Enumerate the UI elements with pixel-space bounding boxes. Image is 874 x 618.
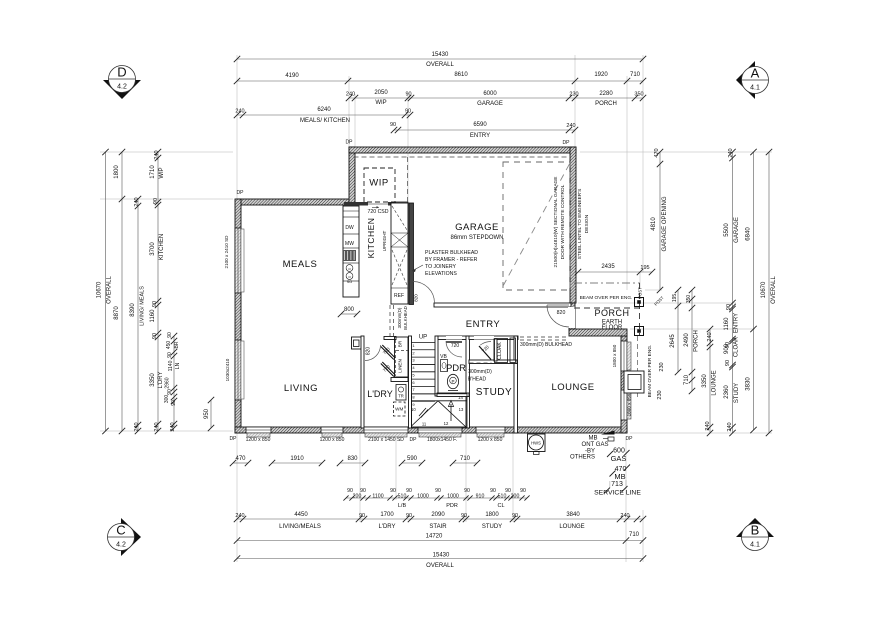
svg-text:10670: 10670 — [761, 281, 767, 298]
svg-text:1160: 1160 — [724, 317, 730, 331]
svg-text:350: 350 — [686, 295, 692, 304]
svg-text:90: 90 — [512, 513, 518, 519]
svg-text:BR: BR — [174, 341, 180, 348]
svg-text:MB: MB — [614, 472, 625, 481]
svg-text:90: 90 — [520, 488, 526, 494]
svg-text:4190: 4190 — [285, 73, 299, 79]
svg-text:6240: 6240 — [317, 107, 331, 113]
svg-text:3830: 3830 — [746, 377, 752, 391]
svg-text:90: 90 — [405, 92, 411, 98]
svg-text:L'DRY: L'DRY — [367, 389, 393, 399]
svg-text:DP: DP — [230, 436, 238, 442]
svg-text:12: 12 — [444, 421, 449, 426]
svg-text:90: 90 — [390, 488, 396, 494]
svg-text:240: 240 — [154, 422, 160, 431]
svg-text:240: 240 — [727, 422, 733, 431]
svg-text:LOUNGE: LOUNGE — [559, 524, 584, 530]
svg-text:240: 240 — [154, 150, 160, 159]
svg-text:21500(H)x4810(W) SECTIONAL GAR: 21500(H)x4810(W) SECTIONAL GARAGE — [553, 177, 559, 268]
svg-text:4.1: 4.1 — [750, 542, 760, 549]
svg-text:2360: 2360 — [724, 385, 730, 399]
svg-text:WIP: WIP — [369, 178, 388, 189]
svg-text:240: 240 — [134, 197, 140, 206]
svg-text:240: 240 — [346, 92, 355, 98]
svg-text:KITCHEN: KITCHEN — [366, 218, 376, 259]
svg-text:STUDY: STUDY — [476, 387, 512, 398]
svg-text:PORCH: PORCH — [694, 330, 700, 352]
svg-text:240: 240 — [134, 422, 140, 431]
svg-text:300mm(D): 300mm(D) — [468, 369, 492, 375]
svg-text:830: 830 — [347, 456, 358, 462]
svg-text:2100 x 1450 SD: 2100 x 1450 SD — [368, 437, 404, 443]
svg-text:FLOOR: FLOOR — [602, 325, 623, 331]
svg-text:PLASTER BULKHEAD: PLASTER BULKHEAD — [425, 250, 478, 256]
svg-text:2090: 2090 — [431, 512, 445, 518]
svg-text:710: 710 — [684, 374, 690, 385]
svg-text:1000: 1000 — [447, 494, 459, 500]
svg-text:230: 230 — [659, 362, 665, 371]
svg-text:710: 710 — [629, 532, 640, 538]
svg-text:90: 90 — [152, 301, 158, 307]
svg-text:DP: DP — [563, 140, 571, 146]
svg-text:2100 x 2410 SD: 2100 x 2410 SD — [224, 235, 229, 269]
svg-text:90: 90 — [725, 360, 731, 366]
svg-text:LINEN: LINEN — [398, 359, 403, 373]
svg-text:DOOR WITH REMOTE CONTROL: DOOR WITH REMOTE CONTROL — [560, 184, 566, 259]
svg-text:200: 200 — [353, 494, 362, 500]
svg-text:LIVING: LIVING — [284, 383, 318, 394]
svg-text:713: 713 — [611, 481, 623, 488]
svg-text:SG: SG — [347, 280, 353, 284]
svg-text:ENTRY: ENTRY — [466, 319, 501, 330]
svg-text:A: A — [751, 66, 760, 81]
svg-text:2645: 2645 — [670, 334, 676, 348]
svg-text:820: 820 — [366, 347, 372, 356]
svg-text:6000: 6000 — [483, 91, 497, 97]
svg-text:DP: DP — [346, 140, 354, 146]
svg-text:B'HEAD: B'HEAD — [468, 377, 487, 383]
svg-text:13: 13 — [459, 407, 464, 412]
svg-text:STUDY: STUDY — [482, 524, 502, 530]
svg-text:STUDY: STUDY — [734, 383, 740, 403]
svg-text:470: 470 — [235, 456, 246, 462]
svg-text:4.2: 4.2 — [116, 542, 126, 549]
svg-text:MEALS/ KITCHEN: MEALS/ KITCHEN — [300, 118, 350, 124]
svg-text:300mm(D) BULKHEAD: 300mm(D) BULKHEAD — [520, 342, 572, 348]
svg-text:DP: DP — [410, 437, 418, 443]
svg-text:ENTRY: ENTRY — [734, 313, 740, 333]
svg-text:3350: 3350 — [702, 374, 708, 388]
svg-text:240: 240 — [235, 109, 244, 115]
svg-text:MEALS: MEALS — [283, 259, 318, 270]
svg-text:1800: 1800 — [114, 165, 120, 179]
svg-text:1700: 1700 — [380, 512, 394, 518]
svg-text:ENTRY: ENTRY — [470, 133, 490, 139]
svg-text:1140: 1140 — [168, 360, 174, 371]
svg-text:CLOAK: CLOAK — [497, 342, 503, 360]
svg-text:4450: 4450 — [294, 512, 308, 518]
svg-text:710: 710 — [630, 72, 641, 78]
svg-text:240: 240 — [728, 148, 734, 157]
svg-text:OVERALL: OVERALL — [426, 563, 454, 569]
svg-text:2050: 2050 — [374, 90, 388, 96]
svg-text:510: 510 — [498, 494, 507, 500]
svg-text:PDR: PDR — [446, 503, 458, 509]
svg-text:2435: 2435 — [601, 264, 615, 270]
svg-text:1920: 1920 — [594, 72, 608, 78]
svg-text:8390: 8390 — [130, 303, 136, 317]
svg-text:90: 90 — [406, 513, 412, 519]
svg-text:2490: 2490 — [684, 333, 690, 347]
svg-text:DW: DW — [345, 225, 354, 231]
svg-text:8610: 8610 — [454, 72, 468, 78]
svg-text:240: 240 — [235, 513, 244, 519]
svg-text:C: C — [116, 523, 125, 538]
svg-text:POST: POST — [638, 287, 643, 299]
svg-text:1910: 1910 — [290, 456, 304, 462]
svg-text:GARAGE: GARAGE — [455, 222, 499, 233]
svg-text:DP: DP — [237, 190, 245, 196]
svg-text:REF: REF — [394, 293, 404, 299]
svg-text:90: 90 — [167, 389, 173, 395]
svg-text:STEEL LINTEL TO ENGINEER'S: STEEL LINTEL TO ENGINEER'S — [577, 189, 583, 260]
svg-text:470: 470 — [654, 148, 660, 157]
svg-text:OVERALL: OVERALL — [426, 62, 454, 68]
svg-text:240: 240 — [705, 421, 711, 430]
svg-text:UPRIGHT: UPRIGHT — [382, 230, 387, 251]
svg-text:720: 720 — [451, 343, 460, 349]
svg-text:590: 590 — [407, 456, 418, 462]
svg-text:1200 x 850: 1200 x 850 — [320, 437, 345, 443]
svg-text:14: 14 — [458, 395, 463, 400]
svg-text:800: 800 — [344, 307, 355, 313]
svg-text:450: 450 — [166, 341, 172, 350]
svg-text:TR: TR — [398, 394, 404, 399]
svg-text:15430: 15430 — [433, 553, 450, 559]
svg-text:BEAM OVER PER ENG.: BEAM OVER PER ENG. — [647, 345, 653, 398]
svg-text:PORCH: PORCH — [595, 101, 617, 107]
svg-text:6840: 6840 — [746, 227, 752, 241]
svg-text:STAIR: STAIR — [429, 524, 447, 530]
svg-text:PORCH: PORCH — [594, 308, 629, 318]
svg-text:90: 90 — [405, 109, 411, 115]
svg-text:OTHERS: OTHERS — [570, 454, 595, 460]
svg-text:LOUNGE: LOUNGE — [712, 370, 718, 395]
svg-text:ELEVATIONS: ELEVATIONS — [425, 271, 457, 277]
svg-text:90: 90 — [359, 513, 365, 519]
svg-text:BEAM OVER PER ENG.: BEAM OVER PER ENG. — [580, 295, 633, 301]
svg-text:90: 90 — [167, 332, 173, 338]
svg-text:D: D — [117, 65, 126, 80]
svg-text:WIP: WIP — [159, 167, 165, 178]
svg-text:1160: 1160 — [150, 309, 156, 323]
svg-text:195: 195 — [672, 294, 678, 303]
svg-text:90: 90 — [464, 488, 470, 494]
svg-text:240: 240 — [566, 123, 575, 129]
svg-text:1800 x 850: 1800 x 850 — [627, 393, 632, 416]
svg-text:LOUNGE: LOUNGE — [551, 382, 594, 393]
svg-text:910: 910 — [476, 494, 485, 500]
svg-text:BY FRAMER - REFER: BY FRAMER - REFER — [425, 257, 478, 263]
svg-text:LIVING/MEALS: LIVING/MEALS — [279, 524, 321, 530]
svg-text:1000: 1000 — [417, 494, 429, 500]
svg-text:2960: 2960 — [165, 377, 171, 388]
svg-text:2280: 2280 — [599, 91, 613, 97]
svg-text:820: 820 — [557, 310, 566, 316]
svg-text:230: 230 — [657, 390, 663, 399]
svg-text:230: 230 — [569, 92, 578, 98]
svg-text:90: 90 — [153, 198, 159, 204]
svg-text:L/B: L/B — [398, 503, 407, 509]
svg-text:VB: VB — [440, 354, 447, 360]
svg-text:3700: 3700 — [150, 242, 156, 256]
svg-text:90: 90 — [167, 352, 173, 358]
svg-text:90: 90 — [435, 488, 441, 494]
svg-text:5500: 5500 — [724, 223, 730, 237]
svg-text:CLOAK: CLOAK — [734, 337, 740, 357]
svg-text:6590: 6590 — [473, 122, 487, 128]
svg-text:90: 90 — [152, 333, 158, 339]
svg-text:90: 90 — [406, 488, 412, 494]
svg-text:240: 240 — [170, 422, 176, 431]
svg-text:HWS: HWS — [531, 441, 541, 446]
svg-text:90: 90 — [461, 513, 467, 519]
svg-text:L'DRY: L'DRY — [158, 371, 164, 388]
svg-text:CL: CL — [497, 503, 504, 509]
svg-text:350: 350 — [634, 92, 643, 98]
svg-text:1200 x 850: 1200 x 850 — [246, 437, 271, 443]
svg-text:510: 510 — [398, 494, 407, 500]
svg-text:LN: LN — [175, 362, 181, 369]
svg-text:90: 90 — [390, 122, 396, 128]
svg-text:1800 x 850: 1800 x 850 — [612, 344, 617, 367]
svg-text:ONT GAS: ONT GAS — [582, 442, 609, 448]
svg-text:WM: WM — [395, 407, 403, 412]
svg-text:SERVICE LINE: SERVICE LINE — [594, 490, 641, 497]
svg-text:3350: 3350 — [150, 373, 156, 387]
svg-text:BULKHEAD: BULKHEAD — [403, 306, 408, 330]
svg-text:14720: 14720 — [426, 534, 443, 540]
svg-text:DESIGN: DESIGN — [584, 214, 590, 233]
svg-text:1100: 1100 — [372, 494, 383, 500]
svg-text:P: P — [451, 379, 454, 384]
svg-text:4810: 4810 — [651, 217, 657, 231]
svg-text:MW: MW — [345, 241, 354, 247]
svg-text:3840: 3840 — [566, 512, 580, 518]
svg-text:15430: 15430 — [432, 52, 449, 58]
svg-text:820: 820 — [414, 294, 419, 302]
svg-text:950: 950 — [204, 408, 210, 419]
svg-text:90: 90 — [490, 488, 496, 494]
svg-text:200: 200 — [511, 494, 520, 500]
svg-text:GARAGE: GARAGE — [734, 217, 740, 243]
svg-text:900: 900 — [724, 343, 730, 354]
svg-text:OVERALL: OVERALL — [771, 276, 777, 304]
svg-text:10670: 10670 — [97, 281, 103, 298]
svg-text:1030x2410: 1030x2410 — [225, 358, 230, 381]
svg-text:300mm(D): 300mm(D) — [397, 307, 402, 328]
svg-text:UP: UP — [419, 335, 427, 341]
svg-text:MB: MB — [589, 436, 598, 442]
svg-text:LIVING/ MEALS: LIVING/ MEALS — [140, 286, 146, 326]
svg-text:TO JOINERY: TO JOINERY — [425, 264, 456, 270]
svg-text:PDR: PDR — [446, 363, 466, 374]
svg-text:240: 240 — [620, 513, 629, 519]
svg-text:1710: 1710 — [150, 165, 156, 179]
svg-text:90: 90 — [726, 304, 732, 310]
svg-text:4.2: 4.2 — [117, 84, 127, 91]
svg-text:GARAGE: GARAGE — [477, 101, 503, 107]
svg-text:BR: BR — [398, 340, 403, 347]
svg-text:11: 11 — [422, 422, 427, 427]
svg-text:L'DRY: L'DRY — [378, 524, 395, 530]
svg-text:1800: 1800 — [485, 512, 499, 518]
svg-text:86mm STEPDOWN: 86mm STEPDOWN — [450, 235, 503, 241]
svg-text:1800x1450 F.: 1800x1450 F. — [427, 437, 457, 443]
svg-text:195: 195 — [640, 265, 649, 271]
svg-text:WIP: WIP — [375, 100, 386, 106]
svg-text:OVERALL: OVERALL — [107, 276, 113, 304]
svg-text:GARAGE OPENING: GARAGE OPENING — [662, 196, 668, 251]
svg-text:4.1: 4.1 — [750, 85, 760, 92]
svg-text:KITCHEN: KITCHEN — [159, 234, 165, 260]
svg-text:90: 90 — [171, 400, 177, 406]
svg-text:B: B — [751, 523, 760, 538]
svg-text:710: 710 — [460, 456, 471, 462]
svg-text:300: 300 — [164, 395, 170, 404]
svg-text:8870: 8870 — [114, 306, 120, 320]
svg-text:1200 x 850: 1200 x 850 — [478, 437, 503, 443]
svg-text:DP: DP — [626, 436, 634, 442]
svg-text:720 CSD: 720 CSD — [367, 209, 388, 215]
svg-text:240: 240 — [707, 332, 713, 341]
